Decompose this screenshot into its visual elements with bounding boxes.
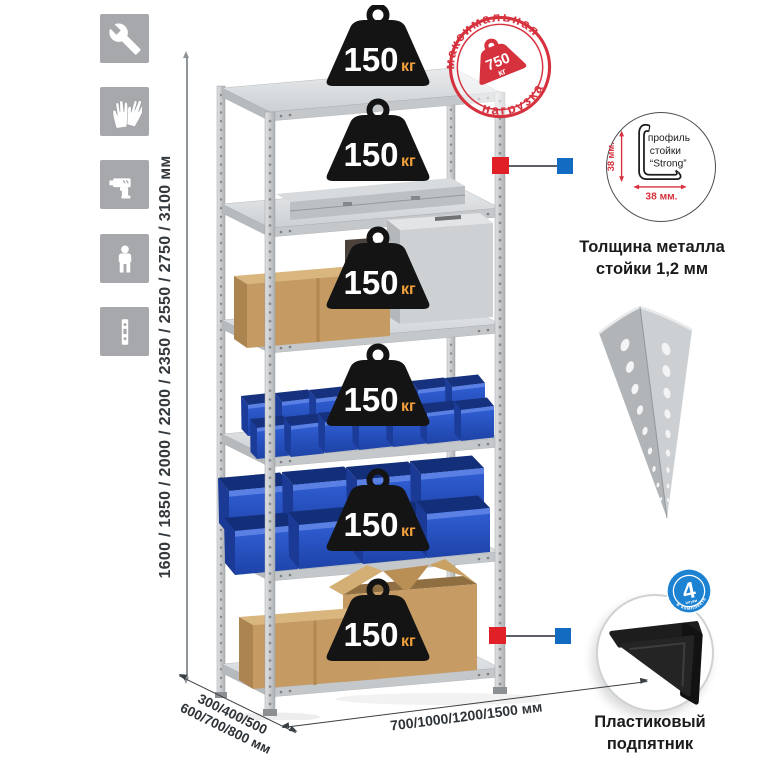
wrench-icon (100, 14, 149, 63)
foot-callout-blue-marker (555, 628, 571, 644)
profile-caption: Толщина металла стойки 1,2 мм (562, 237, 742, 281)
svg-text:кг: кг (401, 523, 416, 540)
profile-callout-red-marker (492, 157, 509, 174)
svg-text:“Strong”: “Strong” (650, 159, 687, 170)
profile-label: профиль стойки “Strong” (648, 132, 690, 169)
kit-count-badge: 4 штуки в комплекте (659, 561, 718, 620)
svg-text:150: 150 (343, 616, 398, 653)
svg-text:кг: кг (401, 58, 416, 75)
svg-text:150: 150 (343, 264, 398, 301)
weight-150kg: 150 кг (327, 347, 430, 427)
svg-text:профиль: профиль (648, 132, 690, 144)
svg-text:кг: кг (401, 281, 416, 298)
profile-callout-line (509, 165, 557, 167)
foot-callout-line (506, 635, 555, 637)
svg-text:38 мм.: 38 мм. (645, 192, 677, 203)
person-icon (100, 234, 149, 283)
svg-text:150: 150 (343, 381, 398, 418)
foot-caption: Пластиковый подпятник (560, 712, 740, 756)
corner-post-photo (598, 303, 708, 528)
product-infographic: 1600 / 1850 / 2000 / 2200 / 2350 / 2550 … (0, 0, 765, 765)
height-dimension-label: 1600 / 1850 / 2000 / 2200 / 2350 / 2550 … (157, 87, 179, 647)
svg-text:150: 150 (343, 136, 398, 173)
height-dim-line (186, 57, 188, 677)
drill-icon (100, 160, 149, 209)
svg-text:150: 150 (343, 506, 398, 543)
profile-callout-blue-marker (557, 158, 573, 174)
svg-text:кг: кг (401, 153, 416, 170)
svg-text:кг: кг (401, 633, 416, 650)
profile-width-arrow: 38 мм. (633, 184, 687, 202)
svg-text:стойки: стойки (650, 146, 681, 157)
post-profile-icon (100, 307, 149, 356)
foot-callout-red-marker (489, 627, 506, 644)
profile-height-arrow: 38 мм. (607, 131, 624, 183)
gloves-icon (100, 87, 149, 136)
svg-text:кг: кг (401, 398, 416, 415)
svg-text:150: 150 (343, 41, 398, 78)
post-profile-diagram: 38 мм. 38 мм. профиль стойки “Strong” (606, 112, 716, 222)
svg-text:38 мм.: 38 мм. (607, 142, 616, 171)
weight-150kg: 150 кг (327, 7, 430, 87)
